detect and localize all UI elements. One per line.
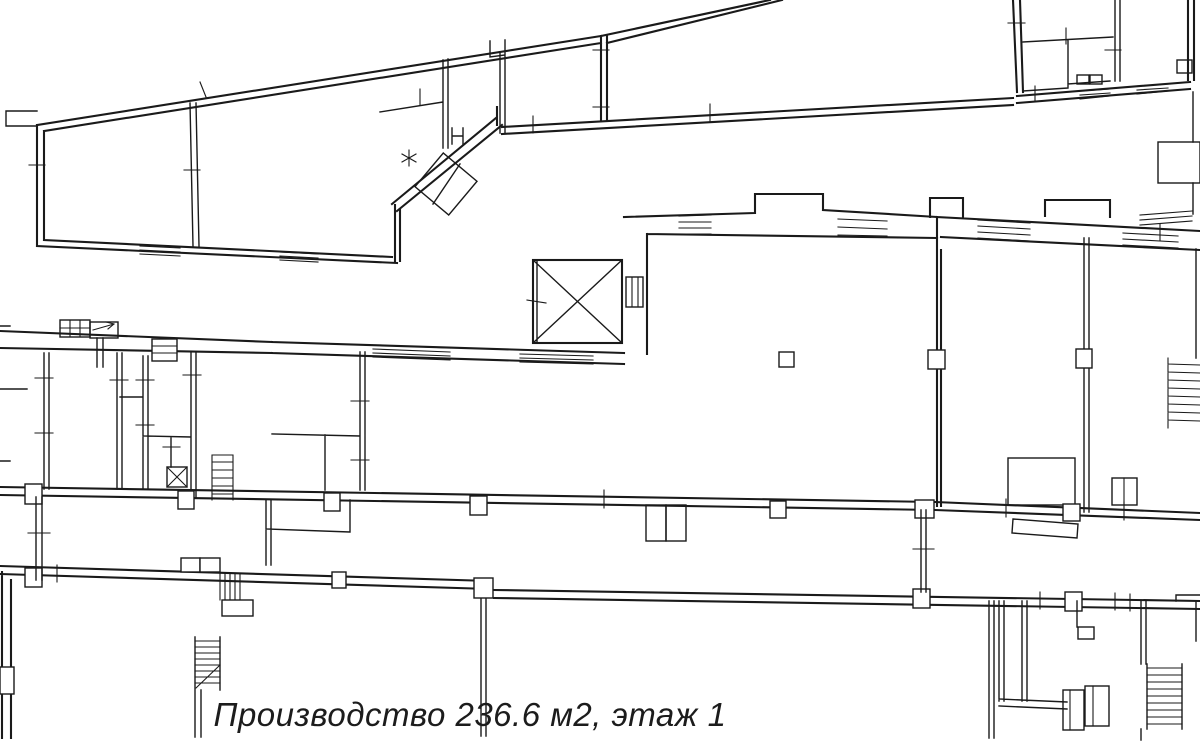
double-shaft-box	[1112, 478, 1137, 505]
top-left-building	[6, 35, 609, 263]
plan-caption: Производство 236.6 м2, этаж 1	[214, 696, 727, 733]
stairs-right	[1141, 601, 1182, 740]
column-ticks	[29, 50, 609, 170]
wall-window-box	[152, 339, 177, 361]
stairwell-rotated-box	[415, 153, 477, 215]
stairwell-x-box	[527, 260, 622, 343]
column-ticks	[1008, 23, 1121, 102]
tilted-room	[1012, 519, 1078, 538]
column	[474, 578, 493, 598]
wall-box	[1078, 627, 1094, 639]
boundary-fence	[502, 0, 1013, 134]
edge-stairs	[1168, 358, 1200, 428]
highlighted-region[interactable]	[272, 194, 937, 503]
annex-room	[1158, 142, 1200, 183]
column	[779, 352, 794, 367]
lower-rooms	[1063, 686, 1109, 730]
arrow-icon	[93, 322, 114, 330]
window-box	[626, 277, 643, 307]
middle-band-building	[0, 194, 1200, 521]
interior-room	[1008, 458, 1075, 505]
shaft-box	[666, 505, 686, 541]
shaft-box	[646, 505, 666, 541]
window-hatches	[1080, 84, 1192, 225]
column	[1076, 349, 1092, 368]
ladder-stairs	[212, 455, 233, 500]
floor-plan: Производство 236.6 м2, этаж 1	[0, 0, 1200, 745]
wall-box	[1177, 60, 1192, 73]
stairs-upper	[220, 573, 253, 616]
window-hatches	[373, 211, 1178, 364]
door-swing-mark	[402, 150, 416, 166]
column	[928, 350, 945, 369]
top-right-building	[1008, 0, 1200, 225]
floor-plan-viewer: Производство 236.6 м2, этаж 1	[0, 0, 1200, 745]
shaft-x-box-small	[167, 467, 187, 487]
